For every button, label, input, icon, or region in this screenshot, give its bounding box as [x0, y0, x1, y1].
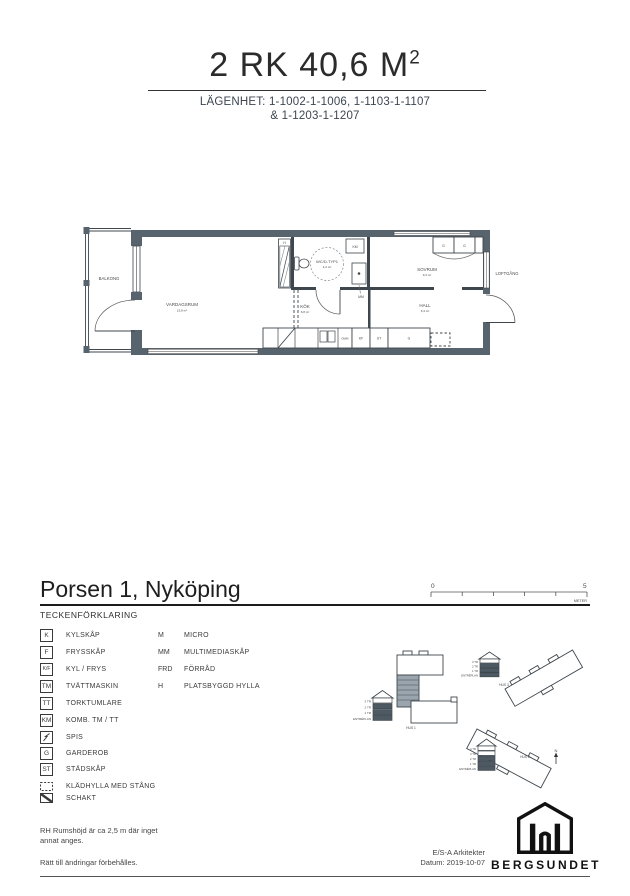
symbol-box-tm: TM: [40, 680, 53, 693]
building-hus3: [503, 647, 585, 710]
floor-stack-icon-hus1: 3 TR 2 TR 1 TR ENTRÉPLAN: [353, 691, 393, 721]
legend-row-forrad: FRDFÖRRÅD: [158, 662, 215, 676]
brand-wordmark: BERGSUNDET: [491, 858, 595, 872]
floorplan-document: 2 RK 40,6 M2 LÄGENHET: 1-1002-1-1006, 1-…: [0, 0, 630, 896]
legend-row-micro: MMICRO: [158, 628, 209, 642]
fridge-freezer-tag: KF: [359, 337, 363, 341]
turning-circle: [311, 248, 344, 281]
svg-text:3 TR: 3 TR: [472, 660, 478, 664]
symbol-box-g: G: [40, 747, 53, 760]
svg-text:1 TR: 1 TR: [470, 762, 476, 766]
room-height-note: RH Rumshöjd är ca 2,5 m där inget annat …: [40, 826, 158, 846]
svg-text:4 TR: 4 TR: [470, 747, 476, 751]
kitchen-fittings: [263, 290, 352, 348]
legend-row-multimedia: MMMULTIMEDIASKÅP: [158, 645, 250, 659]
section-divider: [40, 604, 590, 606]
wardrobe-tag-2: G: [463, 244, 466, 248]
north-arrow-icon: N: [554, 748, 558, 764]
svg-text:ENTRÉPLAN: ENTRÉPLAN: [353, 716, 371, 721]
svg-text:ENTRÉPLAN: ENTRÉPLAN: [459, 766, 476, 771]
media-tag: MM: [358, 295, 364, 299]
architect-name: E/S-A Arkitekter: [370, 848, 485, 858]
bedroom-wardrobes: [433, 237, 483, 259]
hall-label: HALL: [419, 303, 431, 308]
shaft-column: [279, 239, 291, 288]
svg-text:3 TR: 3 TR: [470, 752, 476, 756]
hall-storage: [352, 328, 450, 348]
washer-tag: KM: [352, 245, 357, 249]
symbol-box-km: KM: [40, 714, 53, 727]
legend-heading: TECKENFÖRKLARING: [40, 610, 138, 620]
hus1-label: HUS 1: [406, 726, 416, 730]
hus3-label: HUS 3: [499, 683, 509, 687]
symbol-box-k: K: [40, 629, 53, 642]
svg-text:1 TR: 1 TR: [365, 711, 372, 715]
living-label: VARDAGSRUM: [166, 302, 198, 307]
symbol-box-tt: TT: [40, 697, 53, 710]
svg-text:2 TR: 2 TR: [470, 757, 476, 761]
legend-row-tvattmaskin: TMTVÄTTMASKIN: [40, 679, 118, 693]
wardrobe-tag-1: G: [442, 244, 445, 248]
apartment-numbers-line1: LÄGENHET: 1-1002-1-1006, 1-1103-1-1107: [0, 96, 630, 108]
balcony-label: BALKONG: [99, 276, 120, 281]
kitchen-label: KÖK: [300, 303, 310, 309]
building-hus1: [397, 651, 457, 723]
legend-row-frysskap: FFRYSSKÅP: [40, 645, 106, 659]
page-title-sup: 2: [409, 48, 421, 69]
bathroom: [291, 237, 370, 314]
legend-row-spis: SPIS: [40, 730, 83, 744]
floor-stack-icon-hus3: 3 TR 2 TR 1 TR ENTRÉPLAN: [461, 652, 500, 678]
legend-row-stadskap: STSTÄDSKÅP: [40, 762, 106, 776]
bedroom-area: 9,3 m²: [423, 273, 432, 277]
symbol-box-st: ST: [40, 763, 53, 776]
legend-row-schakt: SCHAKT: [40, 791, 96, 805]
shelf-tag: H: [283, 241, 286, 245]
bedroom-label: SOVRUM: [417, 267, 437, 272]
legend-row-komb: KMKOMB. TM / TT: [40, 713, 119, 727]
architect-block: E/S-A Arkitekter Datum: 2019-10-07: [370, 848, 485, 868]
cleaning-cab-tag: ST: [377, 337, 381, 341]
scale-zero: 0: [431, 583, 435, 590]
hall-area: 6,4 m²: [421, 309, 430, 313]
wc-room-area: 4,2 m²: [323, 265, 332, 269]
kitchen-area: 6,8 m²: [301, 310, 310, 314]
walkway-label: LOFTGÅNG: [495, 271, 518, 276]
legend-row-garderob: GGARDEROB: [40, 746, 108, 760]
living-area: 15,8 m²: [177, 309, 187, 313]
balcony-wall: [95, 237, 142, 348]
hus2-label: HUS 2: [520, 755, 530, 759]
project-title: Porsen 1, Nyköping: [40, 576, 241, 603]
title-divider: [148, 90, 486, 91]
spis-icon: [40, 731, 53, 744]
svg-text:2 TR: 2 TR: [365, 705, 372, 709]
schakt-icon: [40, 793, 53, 803]
legend-row-kylskap: KKYLSKÅP: [40, 628, 100, 642]
wardrobe-tag-hall: G: [408, 337, 411, 341]
scale-bar: 0 5 METER: [430, 582, 590, 604]
bergsundet-house-icon: [517, 802, 573, 854]
dishwasher-tag: DM/M: [342, 337, 349, 341]
page-title: 2 RK 40,6 M2: [0, 46, 630, 85]
balcony: [84, 227, 132, 353]
scale-unit: METER: [574, 599, 588, 603]
legend-row-platsbyggd: HPLATSBYGGD HYLLA: [158, 679, 260, 693]
svg-text:ENTRÉPLAN: ENTRÉPLAN: [461, 673, 478, 678]
svg-text:3 TR: 3 TR: [365, 700, 372, 704]
rights-note: Rätt till ändringar förbehålles.: [40, 858, 138, 867]
bottom-divider: [40, 876, 590, 877]
svg-text:N: N: [555, 748, 558, 753]
svg-text:1 TR: 1 TR: [472, 669, 478, 673]
scale-five: 5: [583, 583, 587, 590]
toilet-icon: [295, 257, 300, 270]
apartment-numbers-line2: & 1-1203-1-1207: [0, 110, 630, 122]
legend-row-kylfrys: K/FKYL / FRYS: [40, 662, 106, 676]
symbol-box-f: F: [40, 646, 53, 659]
svg-text:2 TR: 2 TR: [472, 664, 478, 668]
legend-row-torktumlare: TTTORKTUMLARE: [40, 696, 122, 710]
symbol-box-kf: K/F: [40, 663, 53, 676]
wc-room-label: WC/D-TYP1: [316, 259, 339, 264]
page-title-text: 2 RK 40,6 M: [209, 46, 409, 84]
dashed-box-icon: [40, 782, 53, 791]
drawing-date: Datum: 2019-10-07: [370, 858, 485, 868]
floorplan-drawing: BALKONG: [82, 218, 524, 365]
site-plan: 3 TR 2 TR 1 TR ENTRÉPLAN HUS 1 3 TR: [353, 633, 585, 791]
